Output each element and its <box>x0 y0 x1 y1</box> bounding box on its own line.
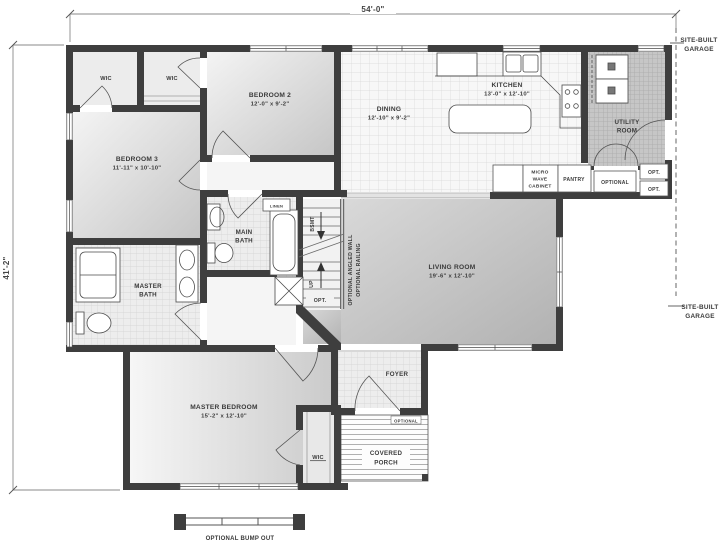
optional-railing <box>340 199 341 309</box>
linen-label: LINEN <box>270 204 283 209</box>
stairs-opt-label: OPT. <box>314 298 327 304</box>
garage-label-mid-line1: SITE-BUILT <box>681 304 718 311</box>
opt-label-1: OPT. <box>648 170 660 176</box>
micro-line1: MICRO <box>531 170 548 176</box>
utility-line2: ROOM <box>617 128 637 135</box>
kitchen-sink <box>503 52 541 76</box>
refrigerator <box>437 53 477 76</box>
master-bedroom-name: MASTER BEDROOM <box>190 404 258 411</box>
range <box>562 85 581 117</box>
wic1-label: WIC <box>100 76 112 82</box>
floorplan-page: 54'-0" 41'-2" SITE-BUILT GARAGE SITE-BUI… <box>0 0 720 545</box>
bump-out-label: OPTIONAL BUMP OUT <box>206 536 275 542</box>
kitchen-size: 13'-0" x 12'-10" <box>484 92 530 98</box>
railing-note: OPTIONAL RAILING <box>356 243 362 296</box>
kitchen-name: KITCHEN <box>491 82 522 89</box>
master-toilet-tank <box>76 312 84 334</box>
dining-size: 12'-10" x 9'-2" <box>368 116 410 122</box>
living-name: LIVING ROOM <box>428 264 475 271</box>
master-bath-line1: MASTER <box>134 283 162 290</box>
wic2-label: WIC <box>166 76 178 82</box>
bedroom2-size: 12'-0" x 9'-2" <box>251 102 290 108</box>
master-wic-label: WIC <box>312 455 324 461</box>
main-bath-line1: MAIN <box>236 229 253 236</box>
optional-bump-out <box>174 514 305 530</box>
garage-label-top-line2: GARAGE <box>684 46 714 53</box>
cabinet-box <box>493 165 523 192</box>
bedroom3-size: 11'-11" x 10'-10" <box>113 166 162 172</box>
dimension-width-label: 54'-0" <box>361 5 384 14</box>
pantry-label: PANTRY <box>563 177 585 183</box>
dining-name: DINING <box>377 106 402 113</box>
bedroom2-name: BEDROOM 2 <box>249 92 291 99</box>
utility-line1: UTILITY <box>614 119 640 126</box>
garage-label-mid-line2: GARAGE <box>685 313 715 320</box>
micro-line2: WAVE <box>533 177 548 183</box>
dimension-height-label: 41'-2" <box>2 256 11 279</box>
foyer-label: FOYER <box>386 371 409 378</box>
opt-label-2: OPT. <box>648 187 660 193</box>
floor-plan-drawing: 54'-0" 41'-2" SITE-BUILT GARAGE SITE-BUI… <box>0 0 720 545</box>
master-toilet <box>87 313 111 333</box>
main-bath-toilet <box>207 243 215 263</box>
stairs-bsmt-label: BSMT <box>310 216 316 231</box>
stairs-up-label: UP <box>309 280 315 288</box>
master-bedroom-size: 15'-2" x 12'-10" <box>201 414 247 420</box>
porch-optional-tag: OPTIONAL <box>394 419 418 424</box>
bedroom3-name: BEDROOM 3 <box>116 156 158 163</box>
master-bath-line2: BATH <box>139 292 157 299</box>
bathtub <box>270 210 298 275</box>
optional-label: OPTIONAL <box>601 180 629 186</box>
main-bath-line2: BATH <box>235 238 253 245</box>
living-size: 19'-6" x 12'-10" <box>429 274 475 280</box>
garage-label-top-line1: SITE-BUILT <box>680 37 717 44</box>
porch-line1: COVERED <box>370 450 403 457</box>
micro-line3: CABINET <box>528 184 551 190</box>
kitchen-island <box>449 105 531 133</box>
master-vanity <box>176 245 198 302</box>
porch-line2: PORCH <box>374 460 398 467</box>
angled-wall-note: OPTIONAL ANGLED WALL <box>348 234 354 306</box>
